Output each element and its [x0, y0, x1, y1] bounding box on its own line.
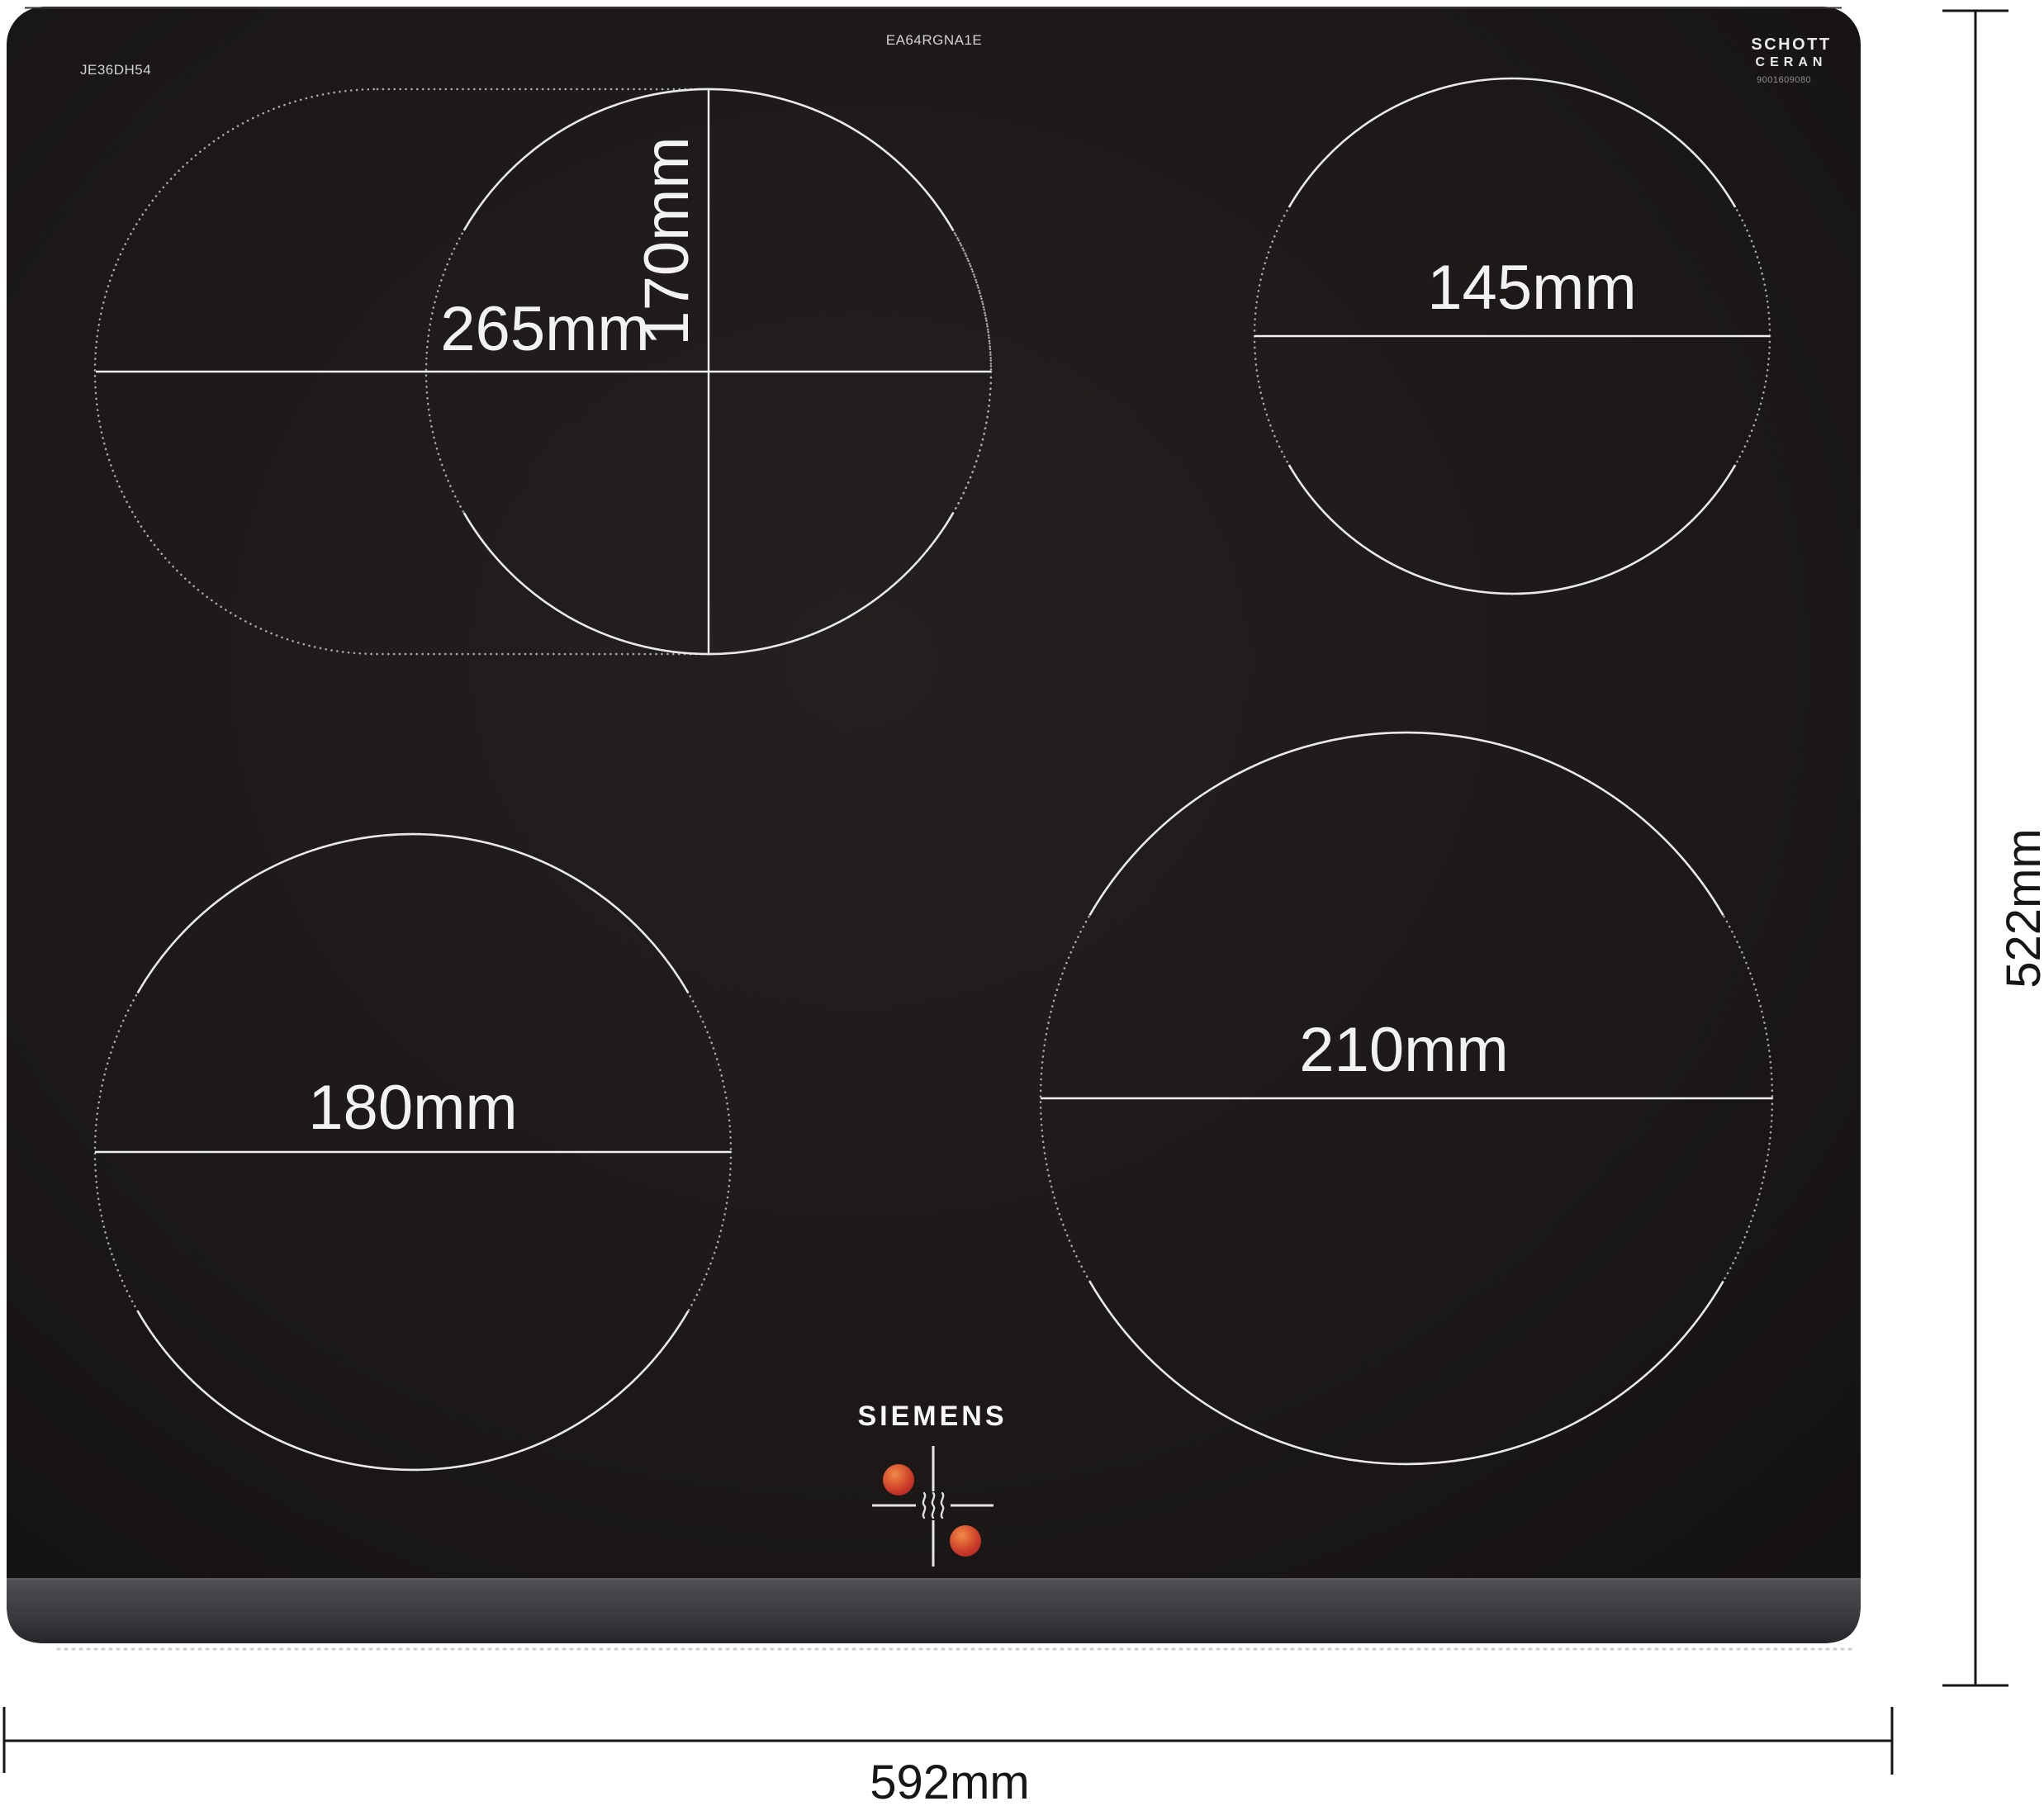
zone-top-left-extended-label: 265mm [440, 294, 649, 364]
hob-dimension-diagram: JE36DH54 EA64RGNA1E SCHOTT CERAN 9001609… [0, 0, 2044, 1806]
type-code-print: EA64RGNA1E [886, 32, 983, 48]
width-dimension-label: 592mm [870, 1756, 1029, 1806]
front-bevel-strip [7, 1578, 1861, 1643]
schott-logo-line2: CERAN [1756, 55, 1828, 69]
width-dimension: 592mm [4, 1707, 1892, 1806]
schott-logo-line1: SCHOTT [1751, 36, 1831, 54]
residual-heat-dot-upper-icon [883, 1464, 914, 1496]
zone-bottom-left-label: 180mm [308, 1073, 517, 1143]
depth-dimension: 522mm [1942, 11, 2044, 1685]
depth-dimension-label: 522mm [1997, 828, 2044, 988]
model-number-print: JE36DH54 [80, 62, 151, 78]
schott-serial-number: 9001609080 [1757, 75, 1811, 85]
residual-heat-dot-lower-icon [950, 1525, 981, 1557]
zone-bottom-right-label: 210mm [1299, 1015, 1508, 1085]
siemens-logo: SIEMENS [857, 1401, 1007, 1432]
zone-top-right-label: 145mm [1427, 253, 1636, 323]
zone-top-left-inner-label: 170mm [632, 136, 702, 345]
